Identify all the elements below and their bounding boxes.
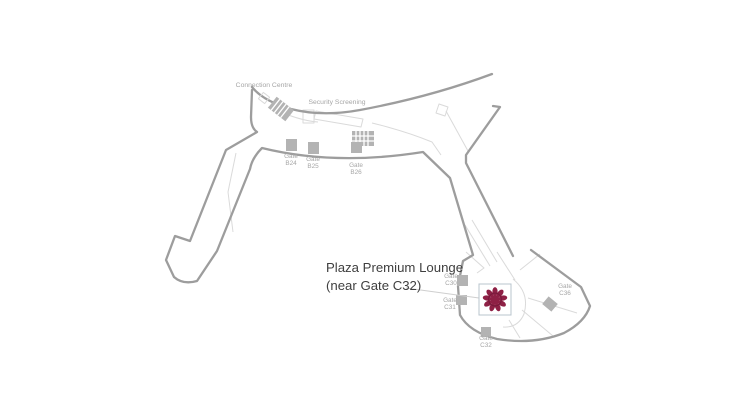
gate-c36-label-word: Gate <box>558 283 572 290</box>
gate-b26-label-number: B26 <box>350 169 362 176</box>
walkway-line-1 <box>465 225 490 266</box>
junction-room-outline <box>436 104 448 116</box>
gate-c30-label-number: C30 <box>445 280 457 287</box>
map-interior-details <box>228 104 577 338</box>
gate-c31-label-word: Gate <box>443 297 457 304</box>
lounge-marker <box>479 284 511 315</box>
terminal-map-canvas: Gate B24 Gate B25 Gate B26 Gate C30 Gate… <box>0 0 730 400</box>
connection-centre-label: Connection Centre <box>236 82 293 89</box>
gate-c30-marker <box>457 275 468 286</box>
gate-b25-label-word: Gate <box>306 156 320 163</box>
junction-walkway-line <box>446 111 468 151</box>
main-terminal-outline <box>166 90 590 341</box>
escalator-icon <box>268 97 294 122</box>
gate-b24-marker <box>286 139 297 151</box>
gate-c31-label-number: C31 <box>444 304 456 311</box>
rotunda-spoke-4 <box>520 254 540 270</box>
lounge-title-line1: Plaza Premium Lounge <box>326 260 463 275</box>
gate-c36-label-number: C36 <box>559 290 571 297</box>
terminal-map: Gate B24 Gate B25 Gate B26 Gate C30 Gate… <box>0 0 730 400</box>
lounge-title-line2: (near Gate C32) <box>326 278 421 293</box>
corridor-inner-line-2 <box>372 123 441 155</box>
gate-labels: Gate B24 Gate B25 Gate B26 Gate C30 Gate… <box>284 153 572 349</box>
gate-b25-label-number: B25 <box>307 163 319 170</box>
rotunda-spoke-2 <box>522 310 553 336</box>
rotunda-detail-1 <box>466 252 484 273</box>
gate-b24-label-number: B24 <box>285 160 297 167</box>
security-screening-label: Security Screening <box>308 99 365 106</box>
gate-b26-marker <box>351 142 362 153</box>
gate-c36-marker <box>542 296 558 311</box>
gate-c32-label-number: C32 <box>480 342 492 349</box>
walkway-line-2 <box>472 220 497 262</box>
gate-c32-label-word: Gate <box>479 335 493 342</box>
gate-b26-label-word: Gate <box>349 162 363 169</box>
gate-b25-marker <box>308 142 319 154</box>
gate-b24-label-word: Gate <box>284 153 298 160</box>
gate-markers <box>286 139 558 337</box>
connector-corridor-wall <box>466 106 513 256</box>
